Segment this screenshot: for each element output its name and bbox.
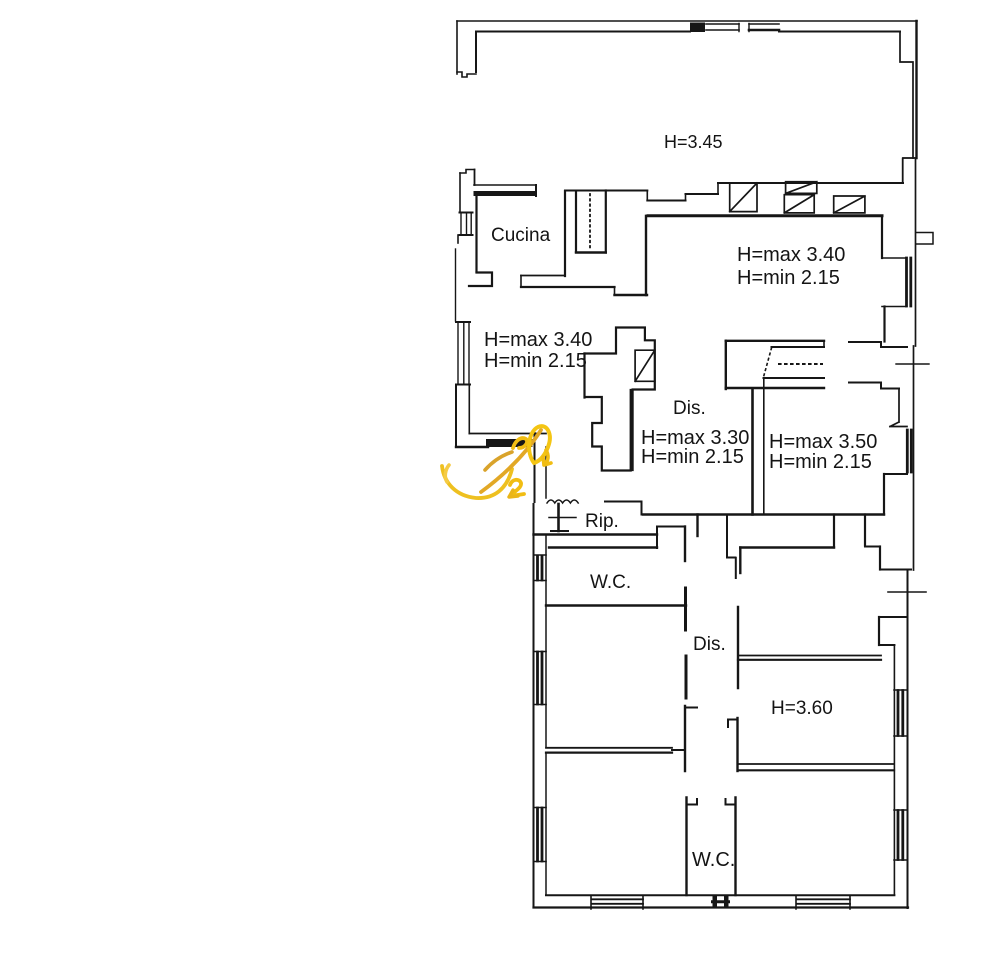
svg-text:Dis.: Dis. <box>693 634 726 655</box>
svg-text:Dis.: Dis. <box>673 398 706 419</box>
svg-text:H=max 3.50: H=max 3.50 <box>769 431 877 453</box>
svg-text:W.C.: W.C. <box>692 849 735 871</box>
svg-text:H=min 2.15: H=min 2.15 <box>737 267 840 289</box>
svg-text:Cucina: Cucina <box>491 225 551 246</box>
svg-text:H=min 2.15: H=min 2.15 <box>769 451 872 473</box>
svg-text:H=max 3.40: H=max 3.40 <box>484 329 592 351</box>
svg-text:H=min 2.15: H=min 2.15 <box>484 350 587 372</box>
svg-text:H=3.60: H=3.60 <box>771 698 833 719</box>
svg-text:H=3.45: H=3.45 <box>664 132 723 152</box>
svg-text:H=min 2.15: H=min 2.15 <box>641 446 744 468</box>
svg-text:Rip.: Rip. <box>585 511 619 532</box>
svg-text:H=max 3.40: H=max 3.40 <box>737 244 845 266</box>
svg-text:W.C.: W.C. <box>590 572 631 593</box>
